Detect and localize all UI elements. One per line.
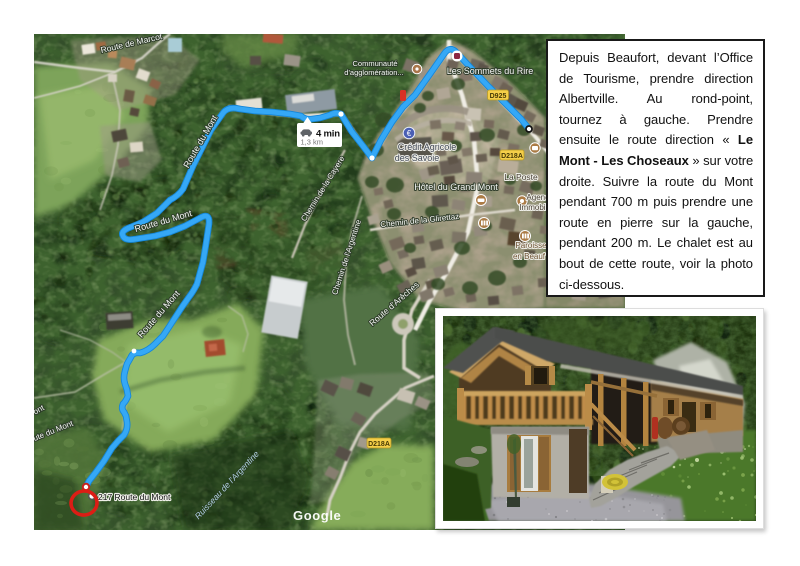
svg-text:D925: D925 — [490, 93, 507, 100]
svg-text:des Savoie: des Savoie — [395, 153, 440, 163]
svg-text:Hôtel du Grand Mont: Hôtel du Grand Mont — [414, 182, 498, 192]
svg-text:La Poste: La Poste — [504, 172, 538, 182]
svg-text:d'agglomération...: d'agglomération... — [344, 68, 403, 77]
svg-text:217 Route du Mont: 217 Route du Mont — [98, 492, 171, 502]
svg-text:Paroisse: Paroisse — [515, 241, 547, 250]
svg-text:Les Sommets du Rire: Les Sommets du Rire — [447, 66, 534, 76]
svg-text:Google: Google — [293, 508, 341, 523]
svg-text:Communauté: Communauté — [352, 59, 397, 68]
svg-text:1,3 km: 1,3 km — [301, 138, 324, 147]
svg-text:en Beauf: en Beauf — [513, 252, 546, 261]
svg-text:€: € — [407, 129, 412, 138]
svg-text:Crédit Agricole: Crédit Agricole — [398, 142, 457, 152]
svg-text:D218A: D218A — [501, 153, 523, 160]
svg-text:D218A: D218A — [368, 441, 390, 448]
